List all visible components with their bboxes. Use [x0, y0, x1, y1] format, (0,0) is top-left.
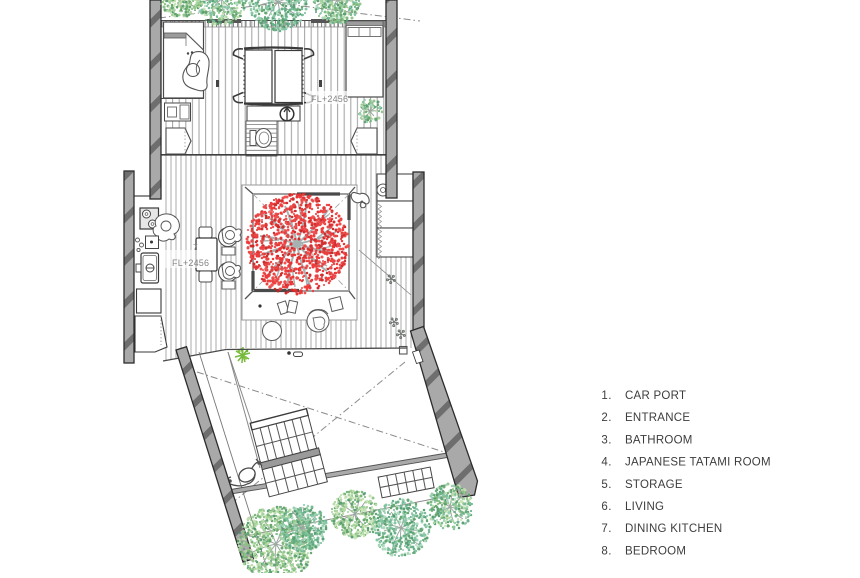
svg-text:7.: 7. [601, 523, 612, 535]
svg-text:LIVING: LIVING [625, 501, 664, 513]
svg-text:8.: 8. [601, 545, 612, 557]
svg-text:JAPANESE TATAMI ROOM: JAPANESE TATAMI ROOM [625, 457, 771, 469]
svg-text:2.: 2. [601, 412, 612, 424]
svg-text:STORAGE: STORAGE [625, 479, 683, 491]
svg-text:ENTRANCE: ENTRANCE [625, 412, 690, 424]
svg-text:FL+2456: FL+2456 [311, 94, 348, 104]
svg-text:BEDROOM: BEDROOM [625, 545, 686, 557]
svg-text:6.: 6. [601, 501, 612, 513]
svg-text:FL+2456: FL+2456 [172, 258, 209, 268]
svg-text:4.: 4. [601, 457, 612, 469]
svg-text:BATHROOM: BATHROOM [625, 434, 693, 446]
svg-text:1.: 1. [601, 390, 612, 402]
svg-text:3.: 3. [601, 434, 612, 446]
svg-text:CAR PORT: CAR PORT [625, 390, 686, 402]
svg-text:DINING KITCHEN: DINING KITCHEN [625, 523, 722, 535]
svg-text:5.: 5. [601, 479, 612, 491]
